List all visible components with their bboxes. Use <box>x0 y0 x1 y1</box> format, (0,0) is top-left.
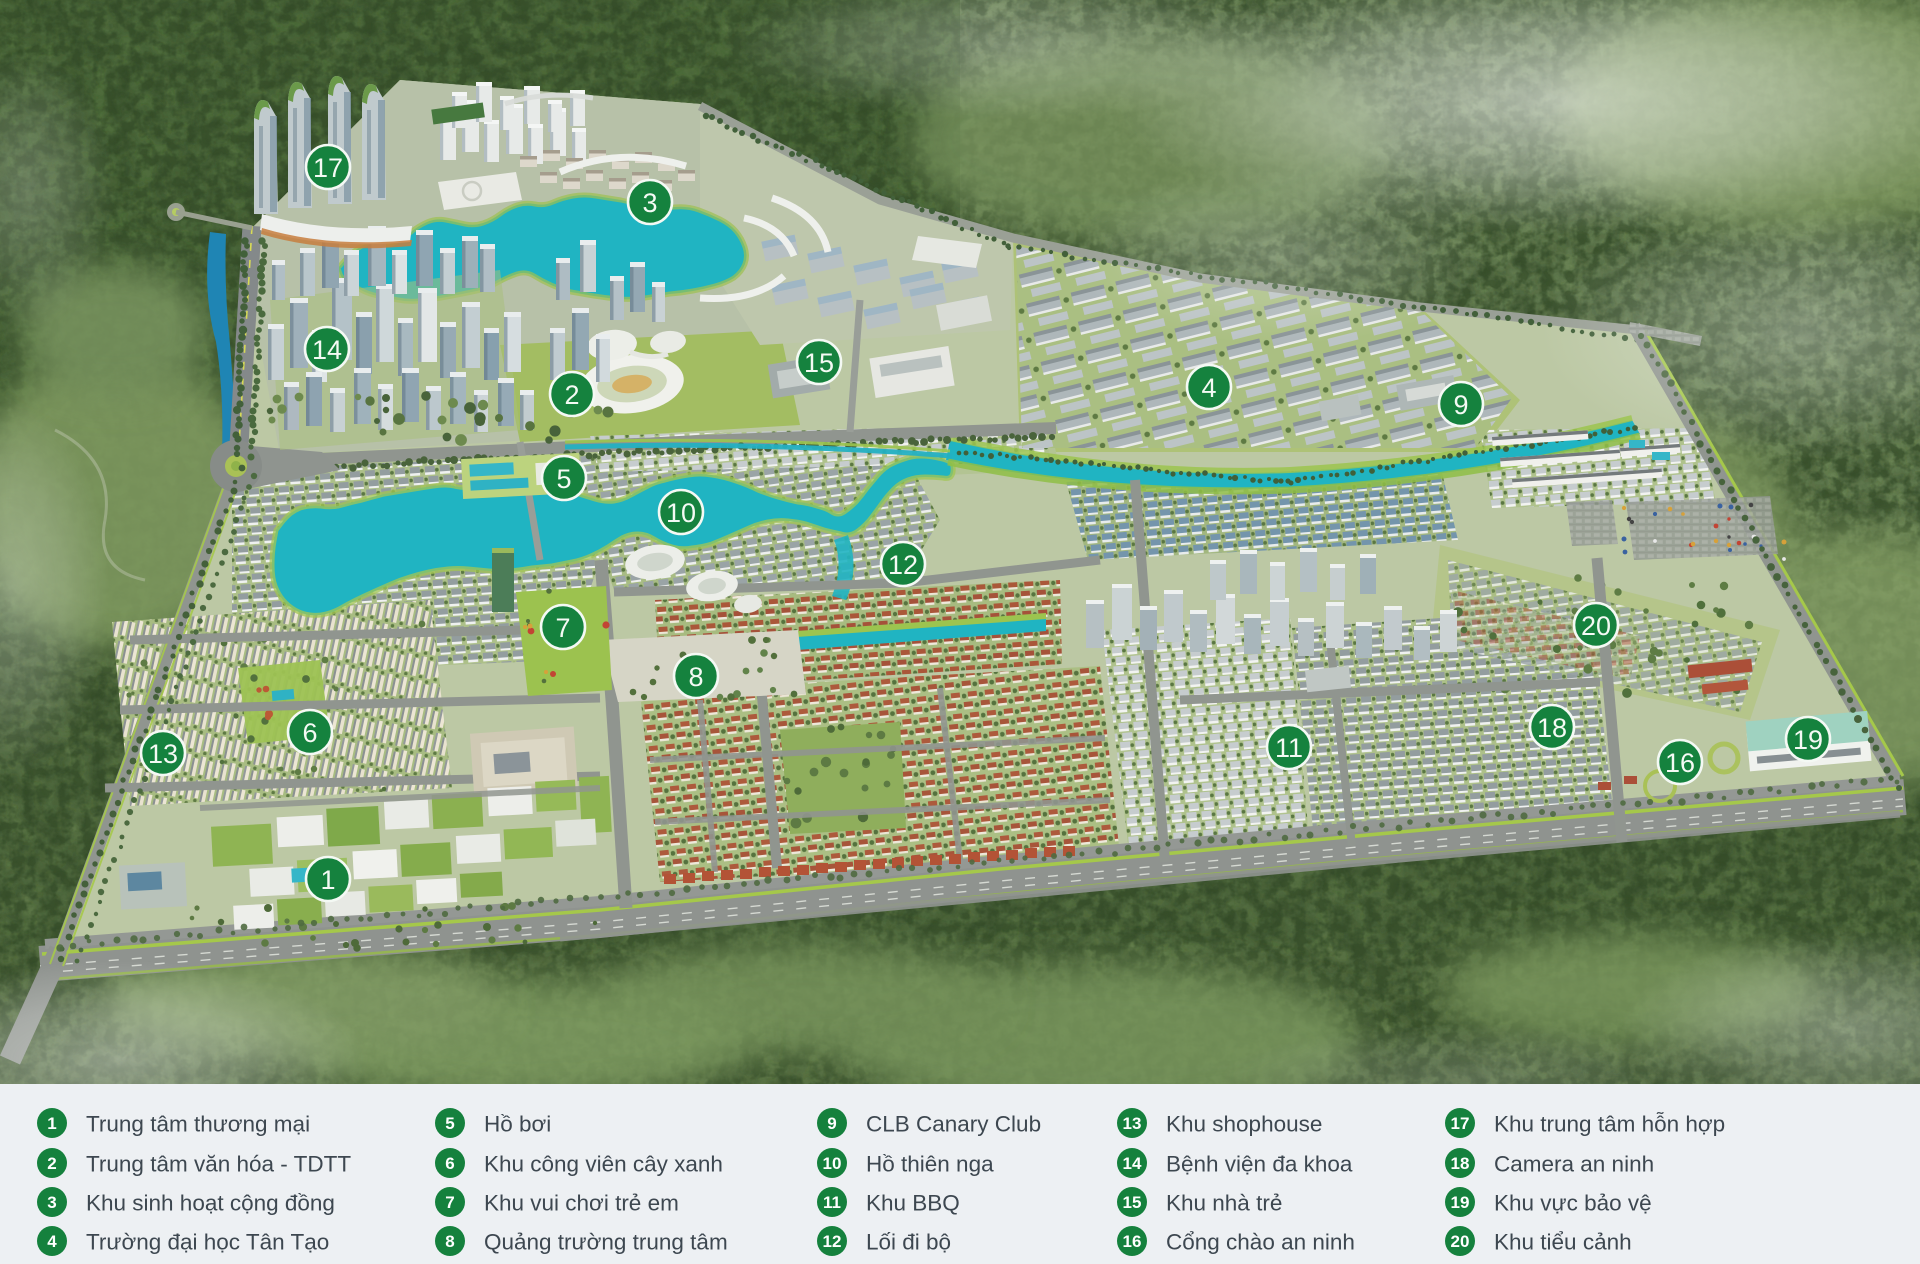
svg-text:19: 19 <box>1793 725 1823 755</box>
svg-text:1: 1 <box>47 1114 56 1133</box>
svg-text:2: 2 <box>564 380 579 410</box>
svg-text:7: 7 <box>555 613 570 643</box>
svg-text:11: 11 <box>823 1193 841 1212</box>
svg-text:17: 17 <box>1451 1114 1470 1133</box>
svg-text:Khu tiểu cảnh: Khu tiểu cảnh <box>1494 1230 1632 1255</box>
svg-text:Khu trung tâm hỗn hợp: Khu trung tâm hỗn hợp <box>1494 1112 1725 1137</box>
svg-text:Hồ thiên nga: Hồ thiên nga <box>866 1152 994 1177</box>
svg-text:20: 20 <box>1451 1232 1470 1251</box>
svg-text:Trung tâm thương mại: Trung tâm thương mại <box>86 1112 310 1137</box>
svg-text:5: 5 <box>445 1114 454 1133</box>
svg-text:CLB Canary Club: CLB Canary Club <box>866 1112 1041 1137</box>
svg-text:17: 17 <box>313 153 343 183</box>
svg-text:6: 6 <box>302 718 317 748</box>
svg-text:Trung tâm văn hóa - TDTT: Trung tâm văn hóa - TDTT <box>86 1152 351 1177</box>
svg-text:Lối đi bộ: Lối đi bộ <box>866 1230 951 1255</box>
svg-text:Khu vui chơi trẻ em: Khu vui chơi trẻ em <box>484 1191 679 1216</box>
svg-text:16: 16 <box>1665 748 1695 778</box>
svg-text:Khu sinh hoạt cộng đồng: Khu sinh hoạt cộng đồng <box>86 1191 335 1216</box>
svg-text:2: 2 <box>47 1154 56 1173</box>
svg-text:14: 14 <box>1123 1154 1142 1173</box>
svg-text:7: 7 <box>445 1193 454 1212</box>
svg-text:12: 12 <box>823 1232 842 1251</box>
svg-text:15: 15 <box>1123 1193 1142 1212</box>
svg-text:Khu vực bảo vệ: Khu vực bảo vệ <box>1494 1191 1652 1216</box>
svg-text:Quảng trường trung tâm: Quảng trường trung tâm <box>484 1230 728 1255</box>
svg-text:18: 18 <box>1451 1154 1470 1173</box>
svg-text:20: 20 <box>1581 611 1611 641</box>
svg-text:10: 10 <box>666 498 696 528</box>
svg-text:4: 4 <box>47 1232 57 1251</box>
svg-text:1: 1 <box>320 865 335 895</box>
svg-text:15: 15 <box>804 348 834 378</box>
svg-text:12: 12 <box>888 550 918 580</box>
svg-text:Bệnh viện đa khoa: Bệnh viện đa khoa <box>1166 1152 1353 1177</box>
svg-text:18: 18 <box>1537 713 1567 743</box>
svg-text:19: 19 <box>1451 1193 1470 1212</box>
svg-text:Khu shophouse: Khu shophouse <box>1166 1112 1322 1137</box>
svg-text:11: 11 <box>1275 733 1303 763</box>
svg-text:Cổng chào an ninh: Cổng chào an ninh <box>1166 1230 1355 1255</box>
svg-text:9: 9 <box>827 1114 836 1133</box>
svg-text:10: 10 <box>823 1154 842 1173</box>
svg-text:13: 13 <box>1123 1114 1142 1133</box>
svg-text:Khu BBQ: Khu BBQ <box>866 1191 960 1216</box>
svg-text:Trường đại học Tân Tạo: Trường đại học Tân Tạo <box>86 1230 329 1255</box>
svg-text:4: 4 <box>1201 373 1216 403</box>
svg-text:Camera an ninh: Camera an ninh <box>1494 1152 1654 1177</box>
svg-text:Hồ bơi: Hồ bơi <box>484 1112 551 1137</box>
svg-text:14: 14 <box>312 335 342 365</box>
svg-text:9: 9 <box>1453 390 1468 420</box>
svg-text:8: 8 <box>445 1232 454 1251</box>
svg-text:13: 13 <box>148 739 178 769</box>
svg-text:3: 3 <box>642 188 657 218</box>
svg-text:16: 16 <box>1123 1232 1142 1251</box>
svg-text:6: 6 <box>445 1154 454 1173</box>
svg-text:Khu nhà trẻ: Khu nhà trẻ <box>1166 1191 1282 1216</box>
svg-text:3: 3 <box>47 1193 56 1212</box>
svg-text:Khu công viên cây xanh: Khu công viên cây xanh <box>484 1152 723 1177</box>
svg-text:8: 8 <box>688 662 703 692</box>
svg-text:5: 5 <box>556 464 571 494</box>
